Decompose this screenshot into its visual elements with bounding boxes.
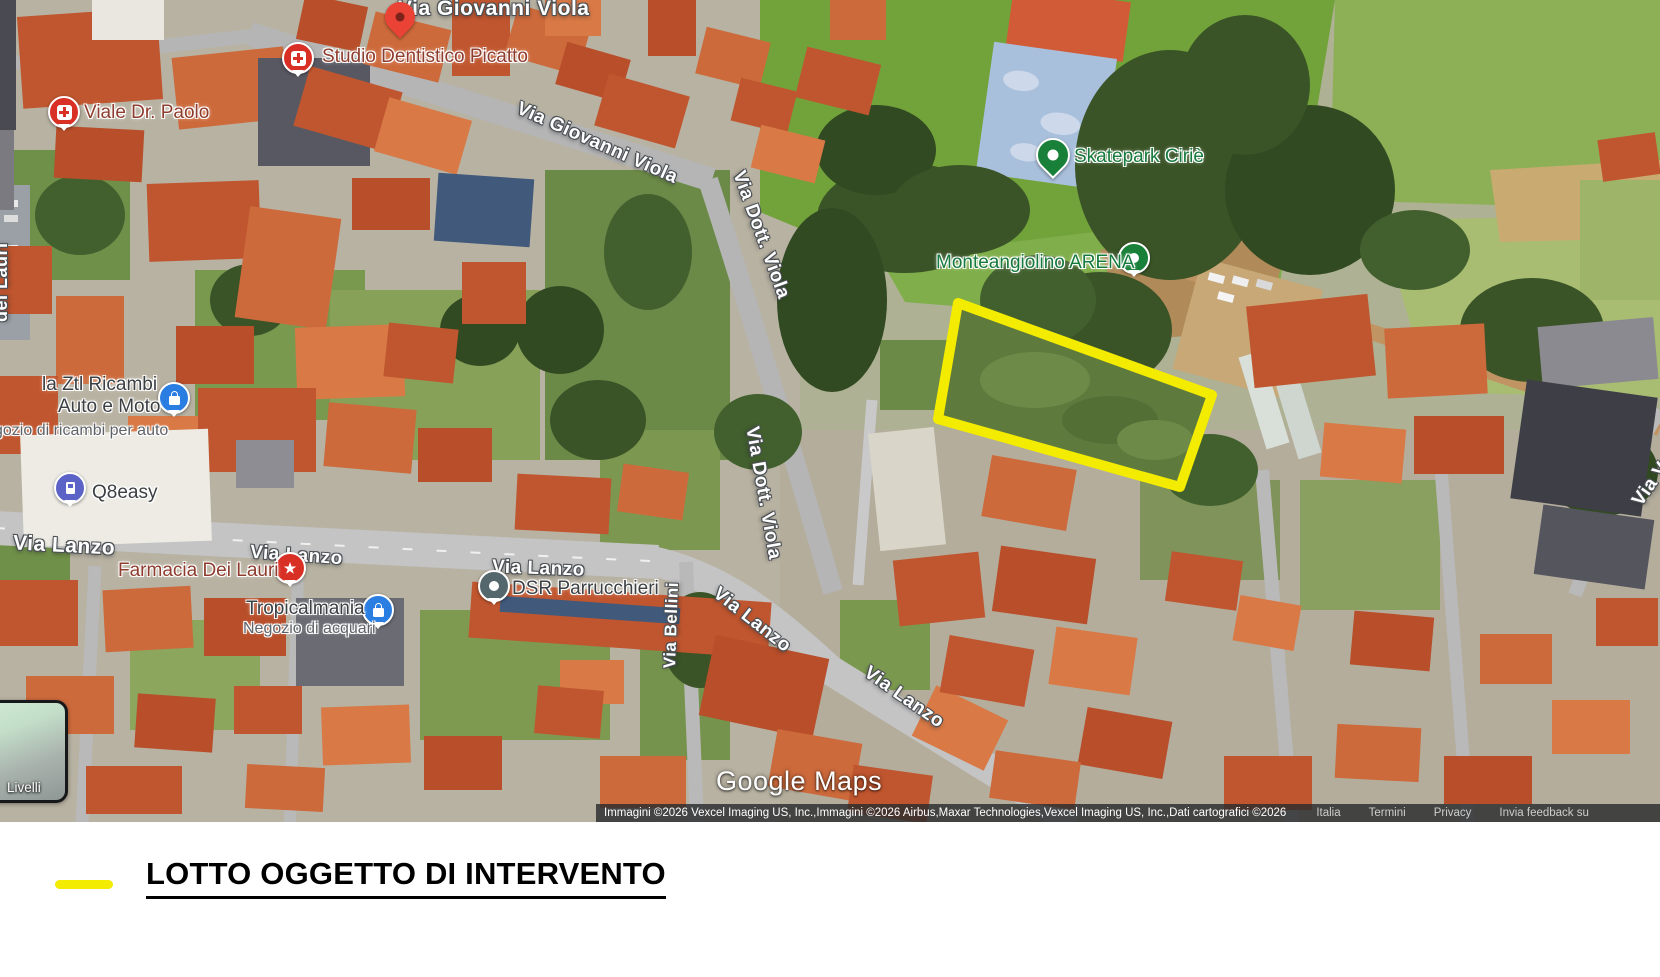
- pin-hole: [1045, 147, 1061, 163]
- attribution-link-1[interactable]: Italia: [1316, 807, 1340, 819]
- page: Via Giovanni Viola Via Giovanni Viola Vi…: [0, 0, 1660, 977]
- attribution-link-4[interactable]: Invia feedback su: [1499, 807, 1589, 819]
- pin-hole: [394, 11, 407, 24]
- pin-dot: [1129, 253, 1139, 263]
- pharmacy-icon: ★: [284, 561, 297, 575]
- layers-label: Livelli: [7, 780, 41, 795]
- gas-station-pin-icon[interactable]: [54, 472, 86, 504]
- shopping-bag-icon: [373, 608, 384, 617]
- legend-label: LOTTO OGGETTO DI INTERVENTO: [146, 856, 666, 899]
- layers-control[interactable]: Livelli: [0, 700, 68, 803]
- pin-dot: [489, 581, 499, 591]
- arena-pin-icon[interactable]: [1118, 242, 1150, 274]
- medical-cross-icon: [57, 105, 72, 120]
- attribution-credits: Immagini ©2026 Vexcel Imaging US, Inc.,I…: [604, 807, 1286, 819]
- health-pin-icon[interactable]: [48, 96, 80, 128]
- google-maps-watermark[interactable]: Google Maps: [716, 766, 882, 797]
- satellite-map[interactable]: Via Giovanni Viola Via Giovanni Viola Vi…: [0, 0, 1660, 822]
- fuel-pump-icon: [66, 482, 75, 494]
- ztl-shop-pin-icon[interactable]: [158, 382, 190, 414]
- legend: LOTTO OGGETTO DI INTERVENTO: [55, 856, 666, 899]
- attribution-bar: Immagini ©2026 Vexcel Imaging US, Inc.,I…: [596, 804, 1660, 822]
- legend-line-swatch: [55, 880, 113, 889]
- attribution-link-2[interactable]: Termini: [1369, 807, 1406, 819]
- attribution-links: ItaliaTerminiPrivacyInvia feedback su: [1316, 807, 1589, 819]
- attribution-link-3[interactable]: Privacy: [1434, 807, 1472, 819]
- pharmacy-pin-icon[interactable]: ★: [274, 552, 306, 584]
- dentist-pin-icon[interactable]: [282, 42, 314, 74]
- satellite-imagery: [0, 0, 1660, 822]
- aquarium-shop-pin-icon[interactable]: [362, 594, 394, 626]
- shopping-bag-icon: [169, 396, 180, 405]
- hairdresser-pin-icon[interactable]: [478, 570, 510, 602]
- medical-cross-icon: [291, 51, 306, 66]
